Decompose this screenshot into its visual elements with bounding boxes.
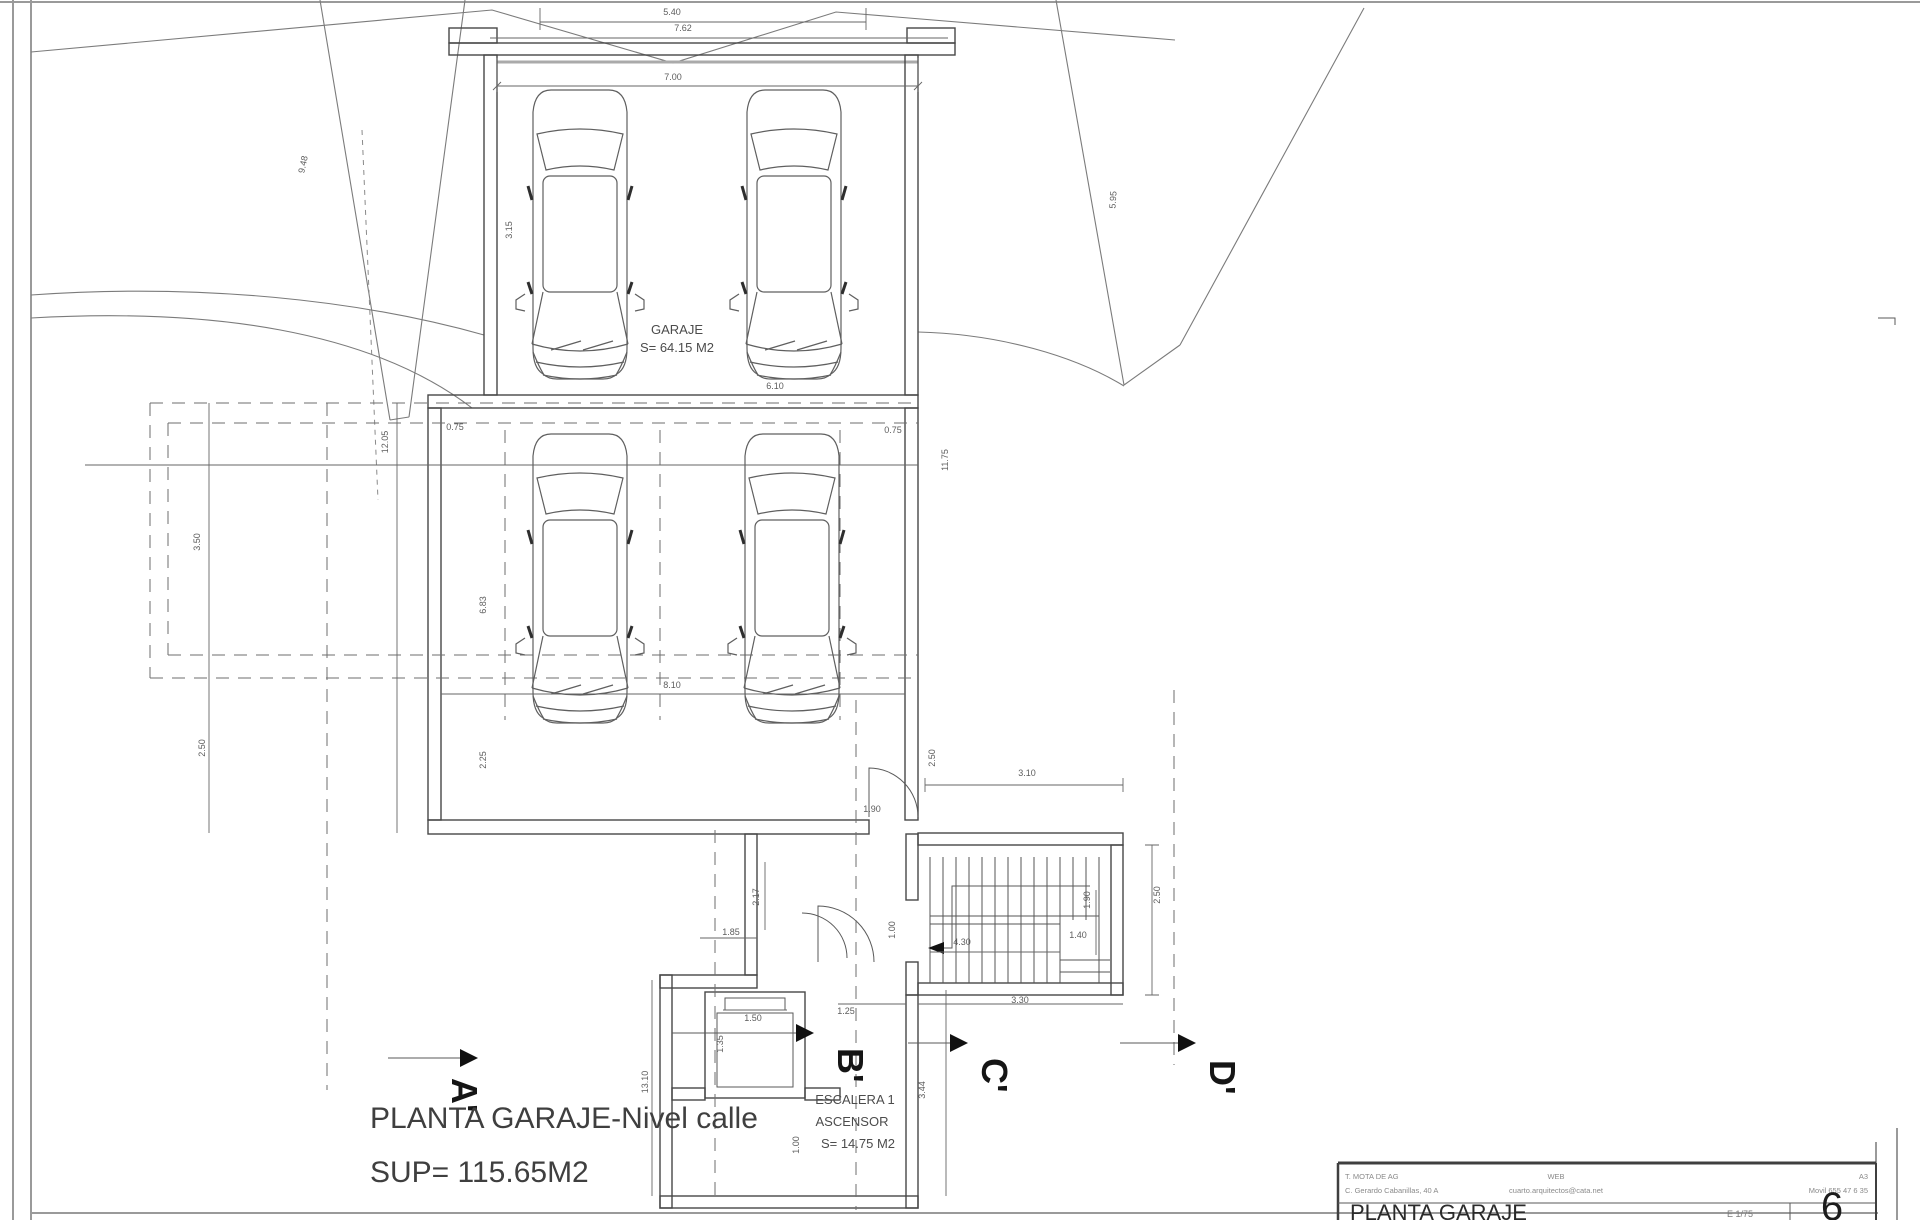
car-top-right [730, 90, 858, 379]
dimension-label: 5.95 [1107, 191, 1118, 209]
dimension-lines [85, 8, 1159, 1196]
sheet-format: A3 [1859, 1172, 1868, 1181]
section-marker-b-label: B' [830, 1048, 871, 1083]
page-frame [0, 0, 1920, 1220]
dimension-label: 12.05 [380, 431, 390, 454]
dimension-label: 3.10 [1018, 768, 1036, 778]
staircase [928, 857, 1110, 983]
car-bottom-right [728, 434, 856, 723]
garage-room-label: GARAJE S= 64.15 M2 [640, 322, 714, 355]
dimension-label: 2.50 [197, 739, 207, 757]
sheet-title: PLANTA GARAJE [1350, 1200, 1527, 1220]
dimension-label: 1.35 [715, 1035, 725, 1053]
floor-plan-canvas: GARAJE S= 64.15 M2 ESCALERA 1 ASCENSOR S… [0, 0, 1920, 1220]
dimension-label: 3.30 [1011, 995, 1029, 1005]
dimension-label: 6.83 [478, 596, 488, 614]
dimension-label: 2.25 [478, 751, 488, 769]
dimension-labels: 5.407.627.009.485.953.156.1012.050.750.7… [192, 7, 1162, 1154]
dimension-label: 3.44 [917, 1081, 927, 1099]
garage-label-line1: GARAJE [651, 322, 703, 337]
doors [802, 768, 918, 962]
dimension-label: 3.50 [192, 533, 202, 551]
car-top-left [516, 90, 644, 379]
title-block-header-row: T. MOTA DE AG C. Gerardo Cabanillas, 40 … [1345, 1172, 1868, 1195]
dimension-label: 9.48 [296, 155, 309, 174]
section-marker-b: B' [672, 1024, 871, 1083]
dimension-label: 1.90 [863, 804, 881, 814]
plan-caption-line1: PLANTA GARAJE-Nivel calle [370, 1102, 758, 1135]
dimension-label: 1.85 [722, 927, 740, 937]
dimension-label: 11.75 [940, 449, 950, 471]
dimension-label: 5.40 [663, 7, 681, 17]
stair-lobby-door [818, 906, 874, 962]
plan-caption-line2: SUP= 115.65M2 [370, 1156, 589, 1189]
stair-treads [930, 857, 1110, 983]
office-name: T. MOTA DE AG [1345, 1172, 1399, 1181]
section-marker-d: D' [1120, 1034, 1243, 1095]
elevator-shaft [672, 992, 840, 1100]
dimension-label: 1.40 [1069, 930, 1087, 940]
elevator-room-door [802, 913, 847, 958]
title-block: T. MOTA DE AG C. Gerardo Cabanillas, 40 … [1338, 1163, 1876, 1220]
garage-walls [428, 28, 955, 834]
dimension-label: 1.90 [1082, 891, 1092, 909]
margin-tick [1878, 318, 1895, 325]
section-marker-d-label: D' [1202, 1060, 1243, 1095]
section-marker-c-label: C' [974, 1058, 1015, 1093]
office-address: C. Gerardo Cabanillas, 40 A [1345, 1186, 1438, 1195]
sheet-number: 6 [1821, 1185, 1843, 1220]
dimension-label: 7.00 [664, 72, 682, 82]
dimension-label: 4.30 [953, 937, 971, 947]
dashed-guides [150, 403, 1174, 1210]
office-email: cuarto.arquitectos@cata.net [1509, 1186, 1604, 1195]
stair-label-line1: ESCALERA 1 [815, 1092, 895, 1107]
dimension-label: 13.10 [640, 1071, 650, 1094]
survey-lines [31, 0, 1364, 500]
stair-room-label: ESCALERA 1 ASCENSOR S= 14.75 M2 [815, 1092, 895, 1151]
stair-label-line3: S= 14.75 M2 [821, 1136, 895, 1151]
garage-label-line2: S= 64.15 M2 [640, 340, 714, 355]
dimension-label: 1.00 [887, 921, 897, 939]
stair-elevator-walls [660, 833, 1123, 1208]
dimension-label: 6.10 [766, 381, 784, 391]
car-bottom-left [516, 434, 644, 723]
dimension-label: 0.75 [446, 422, 464, 432]
dimension-label: 1.00 [791, 1136, 801, 1154]
dimension-label: 8.10 [663, 680, 681, 690]
dimension-label: 2.17 [751, 888, 761, 906]
sheet-scale: E 1/75 [1727, 1209, 1753, 1219]
scanned-plan-sheet: GARAJE S= 64.15 M2 ESCALERA 1 ASCENSOR S… [0, 0, 1920, 1220]
plan-caption: PLANTA GARAJE-Nivel calle SUP= 115.65M2 [370, 1102, 758, 1189]
dimension-label: 3.15 [504, 221, 514, 239]
dimension-label: 1.50 [744, 1013, 762, 1023]
office-web-label: WEB [1547, 1172, 1564, 1181]
dimension-label: 2.50 [927, 749, 937, 767]
dimension-label: 2.50 [1152, 886, 1162, 904]
dimension-label: 1.25 [837, 1006, 855, 1016]
stair-label-line2: ASCENSOR [816, 1114, 889, 1129]
dimension-label: 0.75 [884, 425, 902, 435]
dimension-label: 7.62 [674, 23, 692, 33]
